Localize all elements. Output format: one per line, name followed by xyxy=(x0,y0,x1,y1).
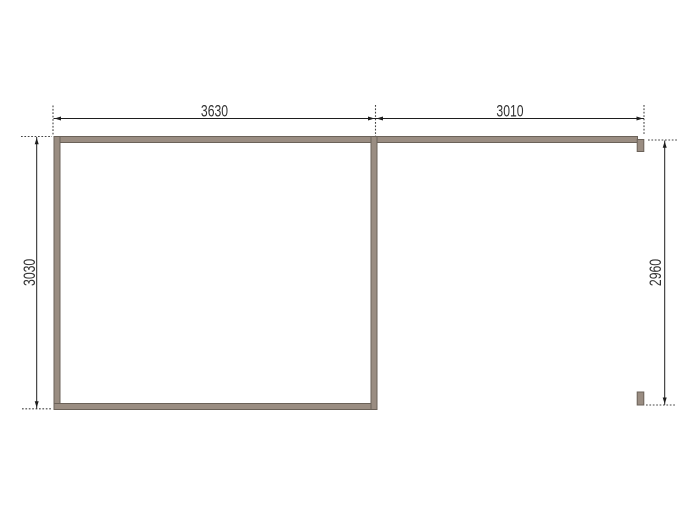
svg-text:3030: 3030 xyxy=(21,259,39,286)
svg-text:2960: 2960 xyxy=(648,259,666,286)
svg-text:3010: 3010 xyxy=(496,103,523,121)
svg-text:3630: 3630 xyxy=(201,103,228,121)
